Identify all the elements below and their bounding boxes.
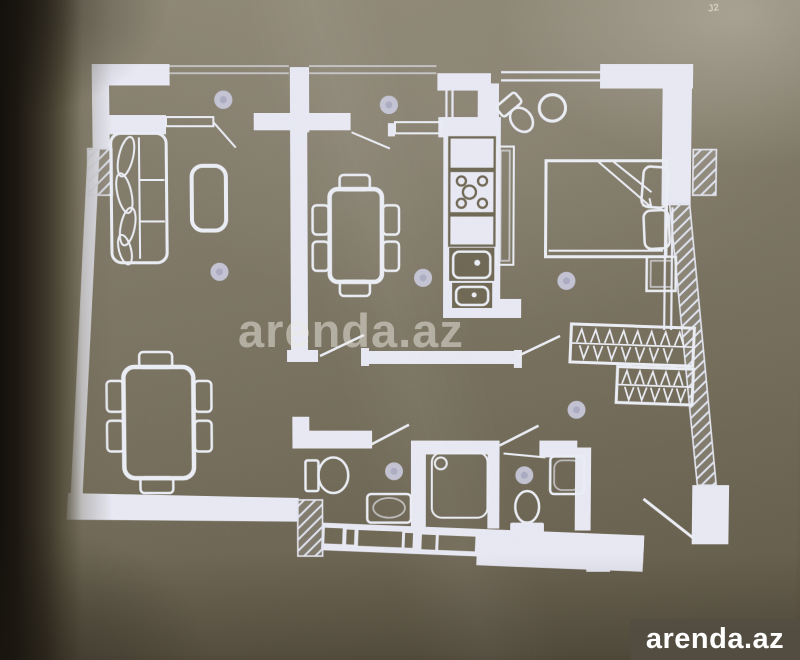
photo-of-floor-plan-page: arenda.az J2 arenda.az <box>0 0 800 660</box>
site-watermark: arenda.az <box>238 303 464 358</box>
page-marker: J2 <box>707 2 720 14</box>
site-logo-text: arenda.az <box>646 623 784 656</box>
site-logo-badge: arenda.az <box>630 619 800 660</box>
